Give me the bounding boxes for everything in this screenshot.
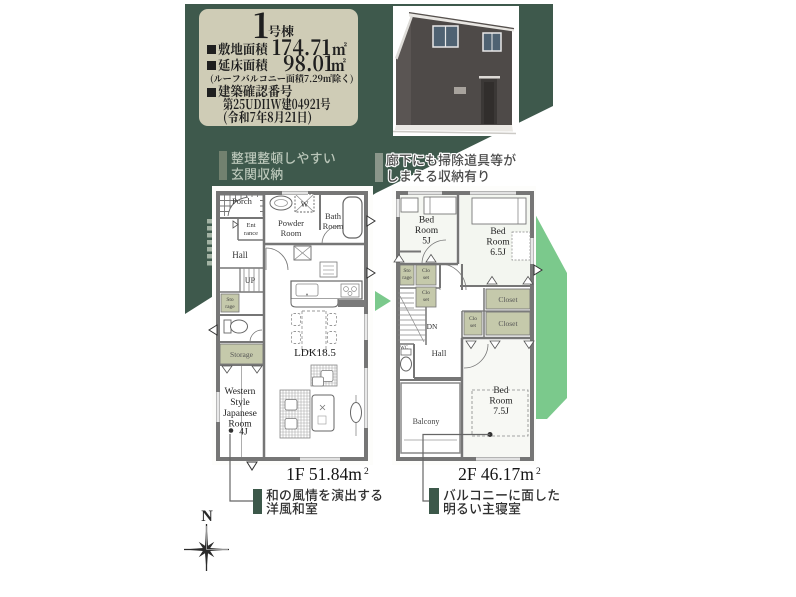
svg-text:Clo: Clo [469,316,477,322]
svg-text:Powder: Powder [278,218,304,228]
svg-text:set: set [423,275,430,281]
svg-text:Balcony: Balcony [413,417,440,426]
svg-text:Clo: Clo [422,268,430,274]
svg-text:Room: Room [281,228,302,238]
svg-text:Room: Room [323,221,344,231]
svg-text:Style: Style [230,398,250,408]
svg-text:Japanese: Japanese [223,409,257,419]
svg-text:Closet: Closet [498,295,518,304]
svg-text:Sto: Sto [403,268,411,274]
svg-text:Clo: Clo [422,290,430,296]
svg-text:2: 2 [536,467,541,477]
svg-text:Bed: Bed [493,386,509,396]
svg-text:2F 46.17m: 2F 46.17m [458,464,534,484]
svg-text:2: 2 [364,467,369,477]
svg-text:rance: rance [244,230,258,237]
svg-text:1F 51.84m: 1F 51.84m [286,464,362,484]
svg-text:set: set [470,323,477,329]
svg-text:6.5J: 6.5J [490,248,506,258]
svg-text:Room: Room [489,397,513,407]
svg-text:DN: DN [427,322,438,331]
svg-text:7.5J: 7.5J [493,407,509,417]
svg-text:Storage: Storage [230,350,254,359]
svg-text:Bath: Bath [325,211,342,221]
svg-text:Room: Room [486,238,510,248]
svg-text:UP: UP [245,276,256,285]
svg-text:rage: rage [402,275,412,281]
svg-text:set: set [423,297,430,303]
svg-text:W: W [301,200,309,209]
svg-text:Western: Western [225,387,256,397]
svg-text:Ent: Ent [246,222,255,229]
svg-text:Room: Room [415,226,439,236]
svg-text:WC: WC [400,346,409,351]
svg-text:LDK18.5: LDK18.5 [294,347,336,359]
svg-text:Bed: Bed [419,216,435,226]
svg-text:Bed: Bed [490,227,506,237]
svg-text:5J: 5J [422,237,431,247]
svg-text:Closet: Closet [498,319,518,328]
svg-text:Porch: Porch [232,196,253,206]
svg-text:4J: 4J [239,428,248,438]
svg-text:Hall: Hall [232,250,248,260]
svg-text:Hall: Hall [432,348,447,358]
svg-text:rage: rage [225,304,235,310]
svg-text:Sto: Sto [226,297,234,303]
svg-text:N: N [201,508,213,525]
